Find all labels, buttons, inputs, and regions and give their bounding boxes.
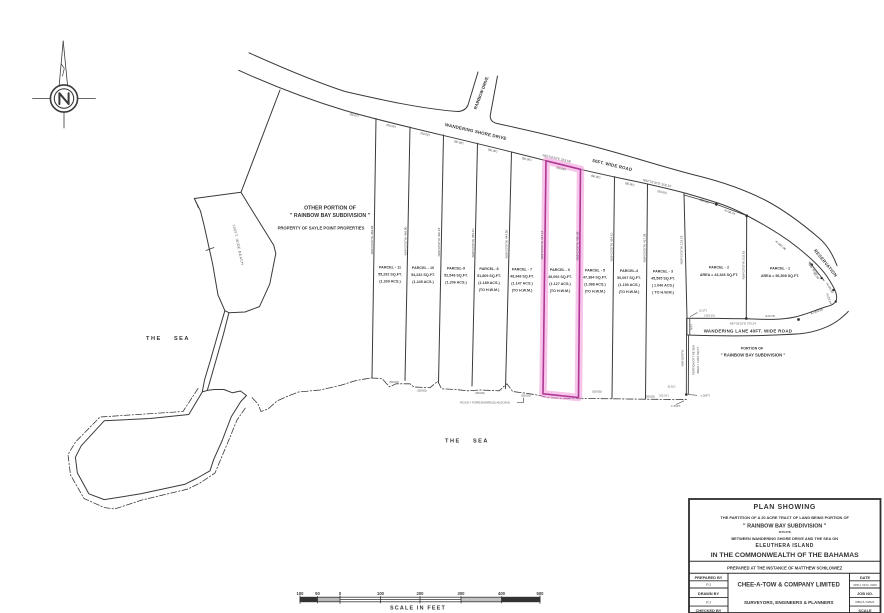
svg-text:49,948 SQ.FT.: 49,948 SQ.FT. — [510, 275, 534, 279]
svg-text:CHECKED BY: CHECKED BY — [696, 608, 722, 613]
svg-text:55,292 SQ.FT.: 55,292 SQ.FT. — [378, 273, 402, 277]
svg-text:THE SEA: THE SEA — [445, 439, 489, 445]
svg-text:N09°02'00"W 424.10: N09°02'00"W 424.10 — [609, 232, 613, 261]
svg-text:SURVEYORS, ENGINEERS & PLANNER: SURVEYORS, ENGINEERS & PLANNERS — [744, 600, 834, 605]
svg-text:N09°02'00"W 102.62: N09°02'00"W 102.62 — [742, 250, 746, 279]
svg-text:400: 400 — [498, 591, 506, 596]
svg-text:50: 50 — [315, 591, 320, 596]
svg-text:PARCEL - 11: PARCEL - 11 — [379, 266, 401, 270]
svg-text:(50.00): (50.00) — [417, 389, 426, 393]
svg-text:500: 500 — [537, 591, 545, 596]
svg-text:(1.150 ACS.): (1.150 ACS.) — [618, 283, 640, 287]
svg-text:(133.25): (133.25) — [765, 314, 775, 318]
svg-text:(TO H.W.M.): (TO H.W.M.) — [585, 290, 606, 294]
svg-text:N09°02'00"W 460.24: N09°02'00"W 460.24 — [437, 227, 441, 256]
svg-text:( 1.046 ACS.): ( 1.046 ACS.) — [652, 284, 675, 288]
svg-text:(50.00): (50.00) — [475, 391, 484, 395]
svg-text:SCALE IN FEET: SCALE IN FEET — [390, 606, 446, 612]
svg-text:PORTION OF: PORTION OF — [741, 347, 764, 351]
svg-text:PREPARED AT THE INSTANCE OF MA: PREPARED AT THE INSTANCE OF MATTHEW SCHI… — [727, 566, 843, 571]
svg-text:PARCEL - 3: PARCEL - 3 — [653, 270, 673, 274]
svg-text:(2.57'): (2.57') — [699, 309, 707, 313]
svg-text:PARCEL - 10: PARCEL - 10 — [412, 266, 434, 270]
svg-text:(50.00): (50.00) — [592, 390, 601, 394]
svg-text:(1.088 ACS.): (1.088 ACS.) — [584, 283, 606, 287]
svg-text:N09°02'00"W 417.35: N09°02'00"W 417.35 — [643, 233, 647, 262]
svg-text:PREPARED BY: PREPARED BY — [695, 575, 723, 580]
svg-text:AREA = 56,508 SQ.FT.: AREA = 56,508 SQ.FT. — [761, 274, 799, 278]
svg-text:(TO H.W.M.): (TO H.W.M.) — [479, 288, 500, 292]
svg-text:47,384 SQ.FT.: 47,384 SQ.FT. — [583, 276, 607, 280]
svg-text:100: 100 — [297, 591, 305, 596]
svg-text:N09°02'00"W 452.10: N09°02'00"W 452.10 — [471, 228, 475, 257]
svg-text:PARCEL - 1: PARCEL - 1 — [770, 267, 790, 271]
svg-text:(TO H.W.M.): (TO H.W.M.) — [619, 290, 640, 294]
svg-text:PLAN SHOWING: PLAN SHOWING — [753, 504, 815, 511]
svg-text:THE PARTITION OF A 20 ACRE TRA: THE PARTITION OF A 20 ACRE TRACT OF LAND… — [721, 515, 850, 520]
svg-text:N09°02'00"W 430.68: N09°02'00"W 430.68 — [575, 231, 579, 260]
svg-text:(50.10'): (50.10') — [659, 393, 668, 397]
svg-text:(50.00): (50.00) — [389, 380, 398, 384]
svg-text:(319.20): (319.20) — [704, 314, 714, 318]
svg-text:THE SEA: THE SEA — [146, 336, 190, 342]
svg-text:(50.00): (50.00) — [645, 394, 654, 398]
svg-text:N09°02'00"W 465.80: N09°02'00"W 465.80 — [404, 226, 408, 255]
svg-text:DRAWN BY: DRAWN BY — [698, 591, 720, 596]
svg-text:" RAINBOW BAY SUBDIVISION ": " RAINBOW BAY SUBDIVISION " — [290, 213, 371, 219]
svg-text:49,092 SQ.FT.: 49,092 SQ.FT. — [548, 275, 572, 279]
svg-text:SCALE: SCALE — [858, 608, 872, 613]
svg-text:(1.245 ACS.): (1.245 ACS.) — [412, 280, 434, 284]
svg-text:100: 100 — [377, 591, 385, 596]
svg-text:AREA = 43,346 SQ.FT.: AREA = 43,346 SQ.FT. — [700, 273, 738, 277]
svg-text:DATE: DATE — [860, 575, 871, 580]
svg-text:RBH 6-7/2021: RBH 6-7/2021 — [855, 600, 874, 604]
svg-text:(1.206 ACS.): (1.206 ACS.) — [445, 281, 467, 285]
svg-text:" RAINBOW BAY SUBDIVISION ": " RAINBOW BAY SUBDIVISION " — [721, 353, 786, 358]
svg-text:(TO H.W.M.): (TO H.W.M.) — [550, 289, 571, 293]
svg-text:AREA = 1,810 SQ.FT.: AREA = 1,810 SQ.FT. — [696, 346, 700, 373]
svg-text:51,809 SQ.FT.: 51,809 SQ.FT. — [477, 274, 501, 278]
svg-text:SITUATE: SITUATE — [779, 530, 791, 534]
svg-text:50,097 SQ.FT.: 50,097 SQ.FT. — [617, 276, 641, 280]
svg-text:PARCEL - 5: PARCEL - 5 — [585, 269, 605, 273]
svg-text:BETWEEN WANDERING SHORE DRIVE: BETWEEN WANDERING SHORE DRIVE AND THE SE… — [731, 536, 838, 541]
svg-text:PORTION OF THE SEA: PORTION OF THE SEA — [692, 345, 696, 375]
svg-text:P.J: P.J — [706, 583, 711, 587]
svg-text:300: 300 — [458, 591, 466, 596]
svg-text:ROCKY FORESHORE(S) ADJOINS: ROCKY FORESHORE(S) ADJOINS — [460, 401, 510, 405]
svg-text:± 50FT.: ± 50FT. — [701, 393, 711, 397]
svg-text:(1.127 ACS.): (1.127 ACS.) — [549, 282, 571, 286]
svg-text:N09°02'00"W: N09°02'00"W — [681, 349, 685, 366]
svg-text:PARCEL-9: PARCEL-9 — [447, 267, 465, 271]
svg-text:52,548 SQ.FT.: 52,548 SQ.FT. — [444, 274, 468, 278]
svg-text:PARCEL - 6: PARCEL - 6 — [550, 268, 570, 272]
svg-text:200: 200 — [417, 591, 425, 596]
svg-text:45,595 SQ.FT.: 45,595 SQ.FT. — [651, 277, 675, 281]
svg-text:N09°02'00"W 469.86: N09°02'00"W 469.86 — [370, 225, 374, 254]
svg-text:N87°56'22"E 379.24': N87°56'22"E 379.24' — [730, 322, 757, 326]
svg-text:N09°02'00"W 437.12: N09°02'00"W 437.12 — [540, 230, 544, 259]
svg-text:54,232 SQ.FT.: 54,232 SQ.FT. — [411, 273, 435, 277]
svg-text:WANDERING LANE 40FT. WIDE ROAD: WANDERING LANE 40FT. WIDE ROAD — [704, 329, 793, 334]
svg-text:ELEUTHERA ISLAND: ELEUTHERA ISLAND — [756, 543, 814, 549]
svg-text:30TH, NOV. 2020: 30TH, NOV. 2020 — [853, 583, 877, 587]
svg-text:PARCEL - 2: PARCEL - 2 — [709, 266, 729, 270]
svg-text:IN THE COMMONWEALTH OF THE BAH: IN THE COMMONWEALTH OF THE BAHAMAS — [711, 552, 859, 559]
svg-text:N09°02'00"W 123.75: N09°02'00"W 123.75 — [679, 235, 683, 264]
svg-text:PARCEL - 7: PARCEL - 7 — [512, 268, 532, 272]
svg-text:(1.147 ACS.): (1.147 ACS.) — [511, 282, 533, 286]
svg-text:CHEE-A-TOW & COMPANY LIMITED: CHEE-A-TOW & COMPANY LIMITED — [738, 583, 841, 589]
svg-text:(50.00): (50.00) — [521, 394, 530, 398]
svg-text:( TO H.W.M.): ( TO H.W.M.) — [652, 291, 674, 295]
svg-text:PARCEL-4: PARCEL-4 — [620, 269, 639, 273]
svg-text:(TO H.W.M.): (TO H.W.M.) — [512, 289, 533, 293]
svg-text:" RAINBOW BAY SUBDIVISION ": " RAINBOW BAY SUBDIVISION " — [743, 524, 827, 530]
svg-text:(5.01'): (5.01') — [668, 384, 676, 388]
svg-text:PARCEL- 8: PARCEL- 8 — [479, 267, 498, 271]
svg-text:PROPERTY OF SAYLE POINT PROPER: PROPERTY OF SAYLE POINT PROPERTIES — [278, 226, 365, 231]
svg-text:P.J: P.J — [706, 601, 711, 605]
svg-text:40FT: 40FT — [690, 324, 694, 330]
svg-text:JOB NO.: JOB NO. — [857, 591, 873, 596]
svg-text:(1.269 ACS.): (1.269 ACS.) — [379, 280, 401, 284]
svg-text:OTHER PORTION OF: OTHER PORTION OF — [304, 206, 356, 212]
svg-text:N09°02'00"W 444.50: N09°02'00"W 444.50 — [505, 229, 509, 258]
svg-text:(1.189 ACS.): (1.189 ACS.) — [478, 281, 500, 285]
